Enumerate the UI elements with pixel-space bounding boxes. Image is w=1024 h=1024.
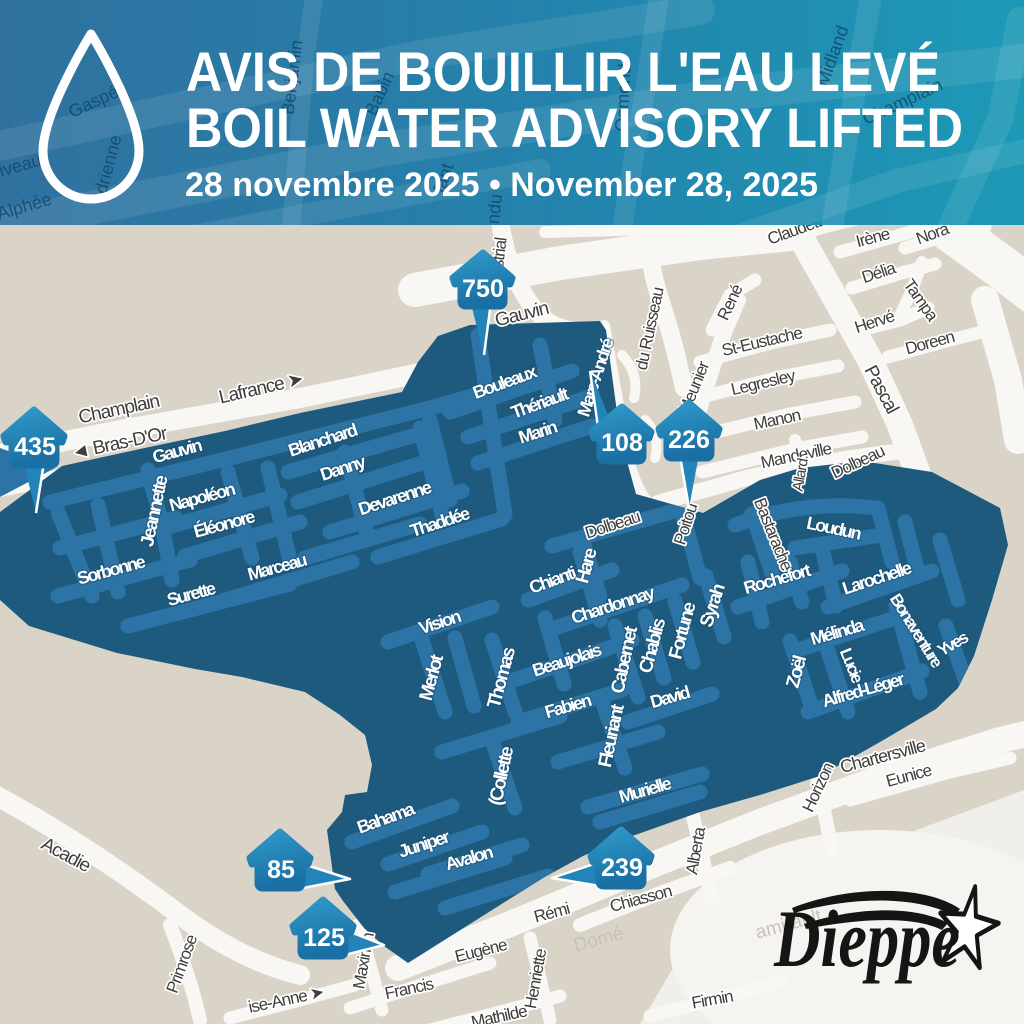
- svg-text:108: 108: [601, 429, 643, 457]
- svg-text:435: 435: [14, 433, 56, 461]
- svg-text:239: 239: [601, 854, 643, 882]
- svg-text:Dieppe: Dieppe: [773, 893, 960, 984]
- svg-text:125: 125: [303, 924, 345, 952]
- svg-text:28 novembre 2025 • November: 28 novembre 2025 • November 28, 2025: [185, 166, 818, 204]
- svg-text:750: 750: [462, 275, 504, 303]
- svg-text:BOIL WATER ADVISORY LIFTED: BOIL WATER ADVISORY LIFTED: [186, 96, 963, 159]
- svg-text:226: 226: [668, 426, 710, 454]
- svg-text:85: 85: [267, 856, 295, 884]
- svg-text:AVIS DE BOUILLIR L'EAU LEVÉ: AVIS DE BOUILLIR L'EAU LEVÉ: [186, 40, 940, 103]
